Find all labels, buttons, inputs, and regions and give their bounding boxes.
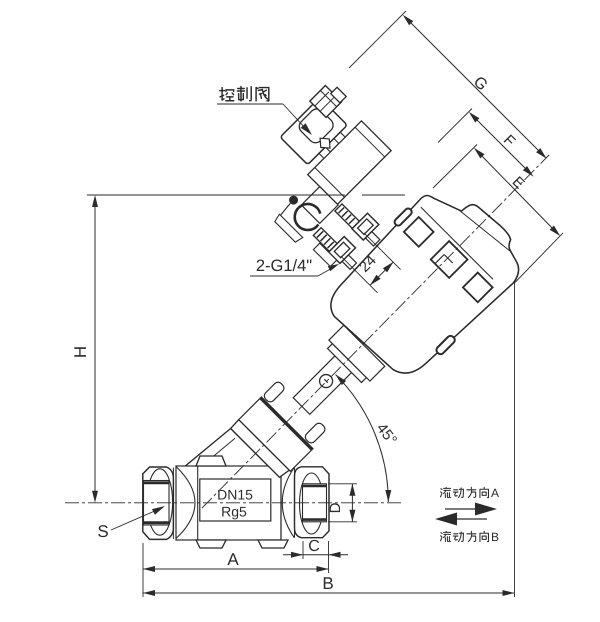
svg-text:2-G1/4": 2-G1/4" [256,257,312,275]
svg-text:D: D [327,502,344,513]
svg-text:H: H [71,346,90,358]
svg-text:C: C [308,538,320,555]
svg-text:A: A [491,486,499,500]
svg-text:DN15: DN15 [217,487,253,503]
svg-text:B: B [491,530,499,544]
svg-text:B: B [322,574,333,593]
svg-text:S: S [97,522,108,541]
svg-text:A: A [227,550,239,569]
svg-text:Rg5: Rg5 [221,504,247,520]
